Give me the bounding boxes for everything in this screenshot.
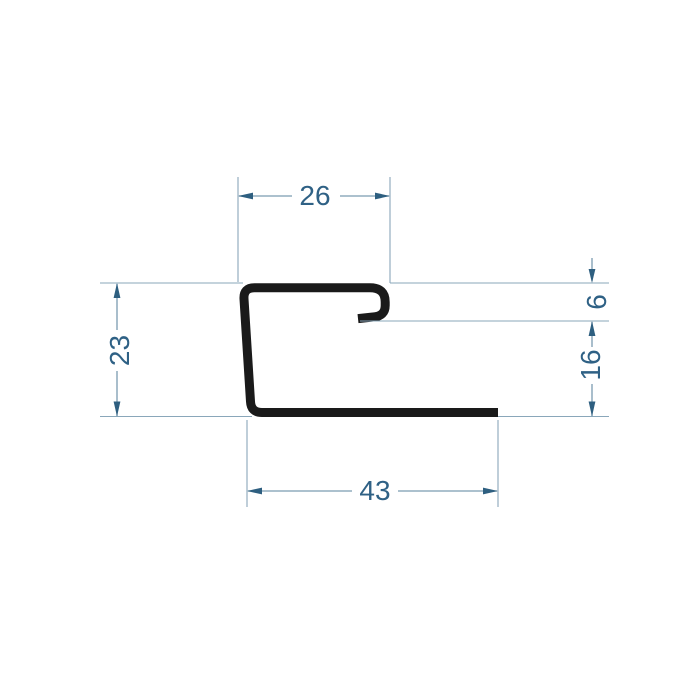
dim-label-right-lower-height: 16	[575, 349, 606, 380]
dim-label-bottom-width: 43	[359, 475, 390, 506]
dim-hook-height: 6	[360, 258, 612, 321]
dim-bottom-width-arrow-right	[483, 488, 498, 495]
dim-right-lower-arrow-down	[589, 402, 596, 417]
dim-top-width-arrow-right	[375, 193, 390, 200]
dim-label-hook-height: 6	[581, 294, 612, 310]
dim-top-width-arrow-left	[238, 193, 253, 200]
dim-left-height-arrow-down	[114, 402, 121, 417]
dim-label-top-width: 26	[299, 180, 330, 211]
dim-bottom-width-arrow-left	[247, 488, 262, 495]
profile-outline	[244, 288, 498, 413]
dim-top-width: 26	[238, 177, 390, 283]
dim-left-height: 23	[100, 283, 252, 417]
profile-dimension-drawing: 26 23 6 16	[0, 0, 700, 700]
dim-hook-height-arrow-down	[589, 269, 596, 283]
drawing-canvas: 26 23 6 16	[0, 0, 700, 700]
dim-bottom-width: 43	[247, 420, 498, 507]
dim-label-left-height: 23	[104, 335, 135, 366]
dim-right-lower-arrow-up	[589, 321, 596, 336]
profile-path	[244, 288, 498, 413]
dim-right-lower-height: 16	[498, 321, 609, 417]
dim-left-height-arrow-up	[114, 283, 121, 298]
